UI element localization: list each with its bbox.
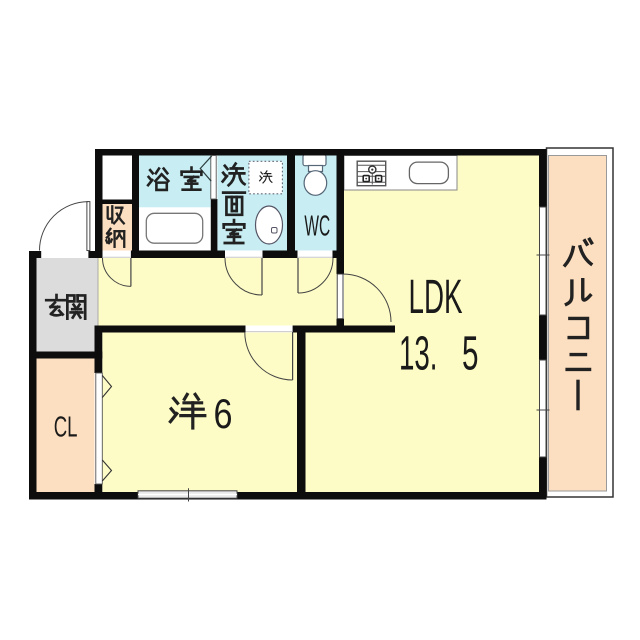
svg-text:6: 6 bbox=[214, 390, 233, 437]
svg-text:WC: WC bbox=[304, 210, 330, 242]
svg-text:LDK: LDK bbox=[409, 271, 463, 324]
svg-text:CL: CL bbox=[54, 411, 78, 443]
svg-text:13.: 13. bbox=[399, 327, 438, 380]
svg-text:5: 5 bbox=[462, 327, 479, 380]
